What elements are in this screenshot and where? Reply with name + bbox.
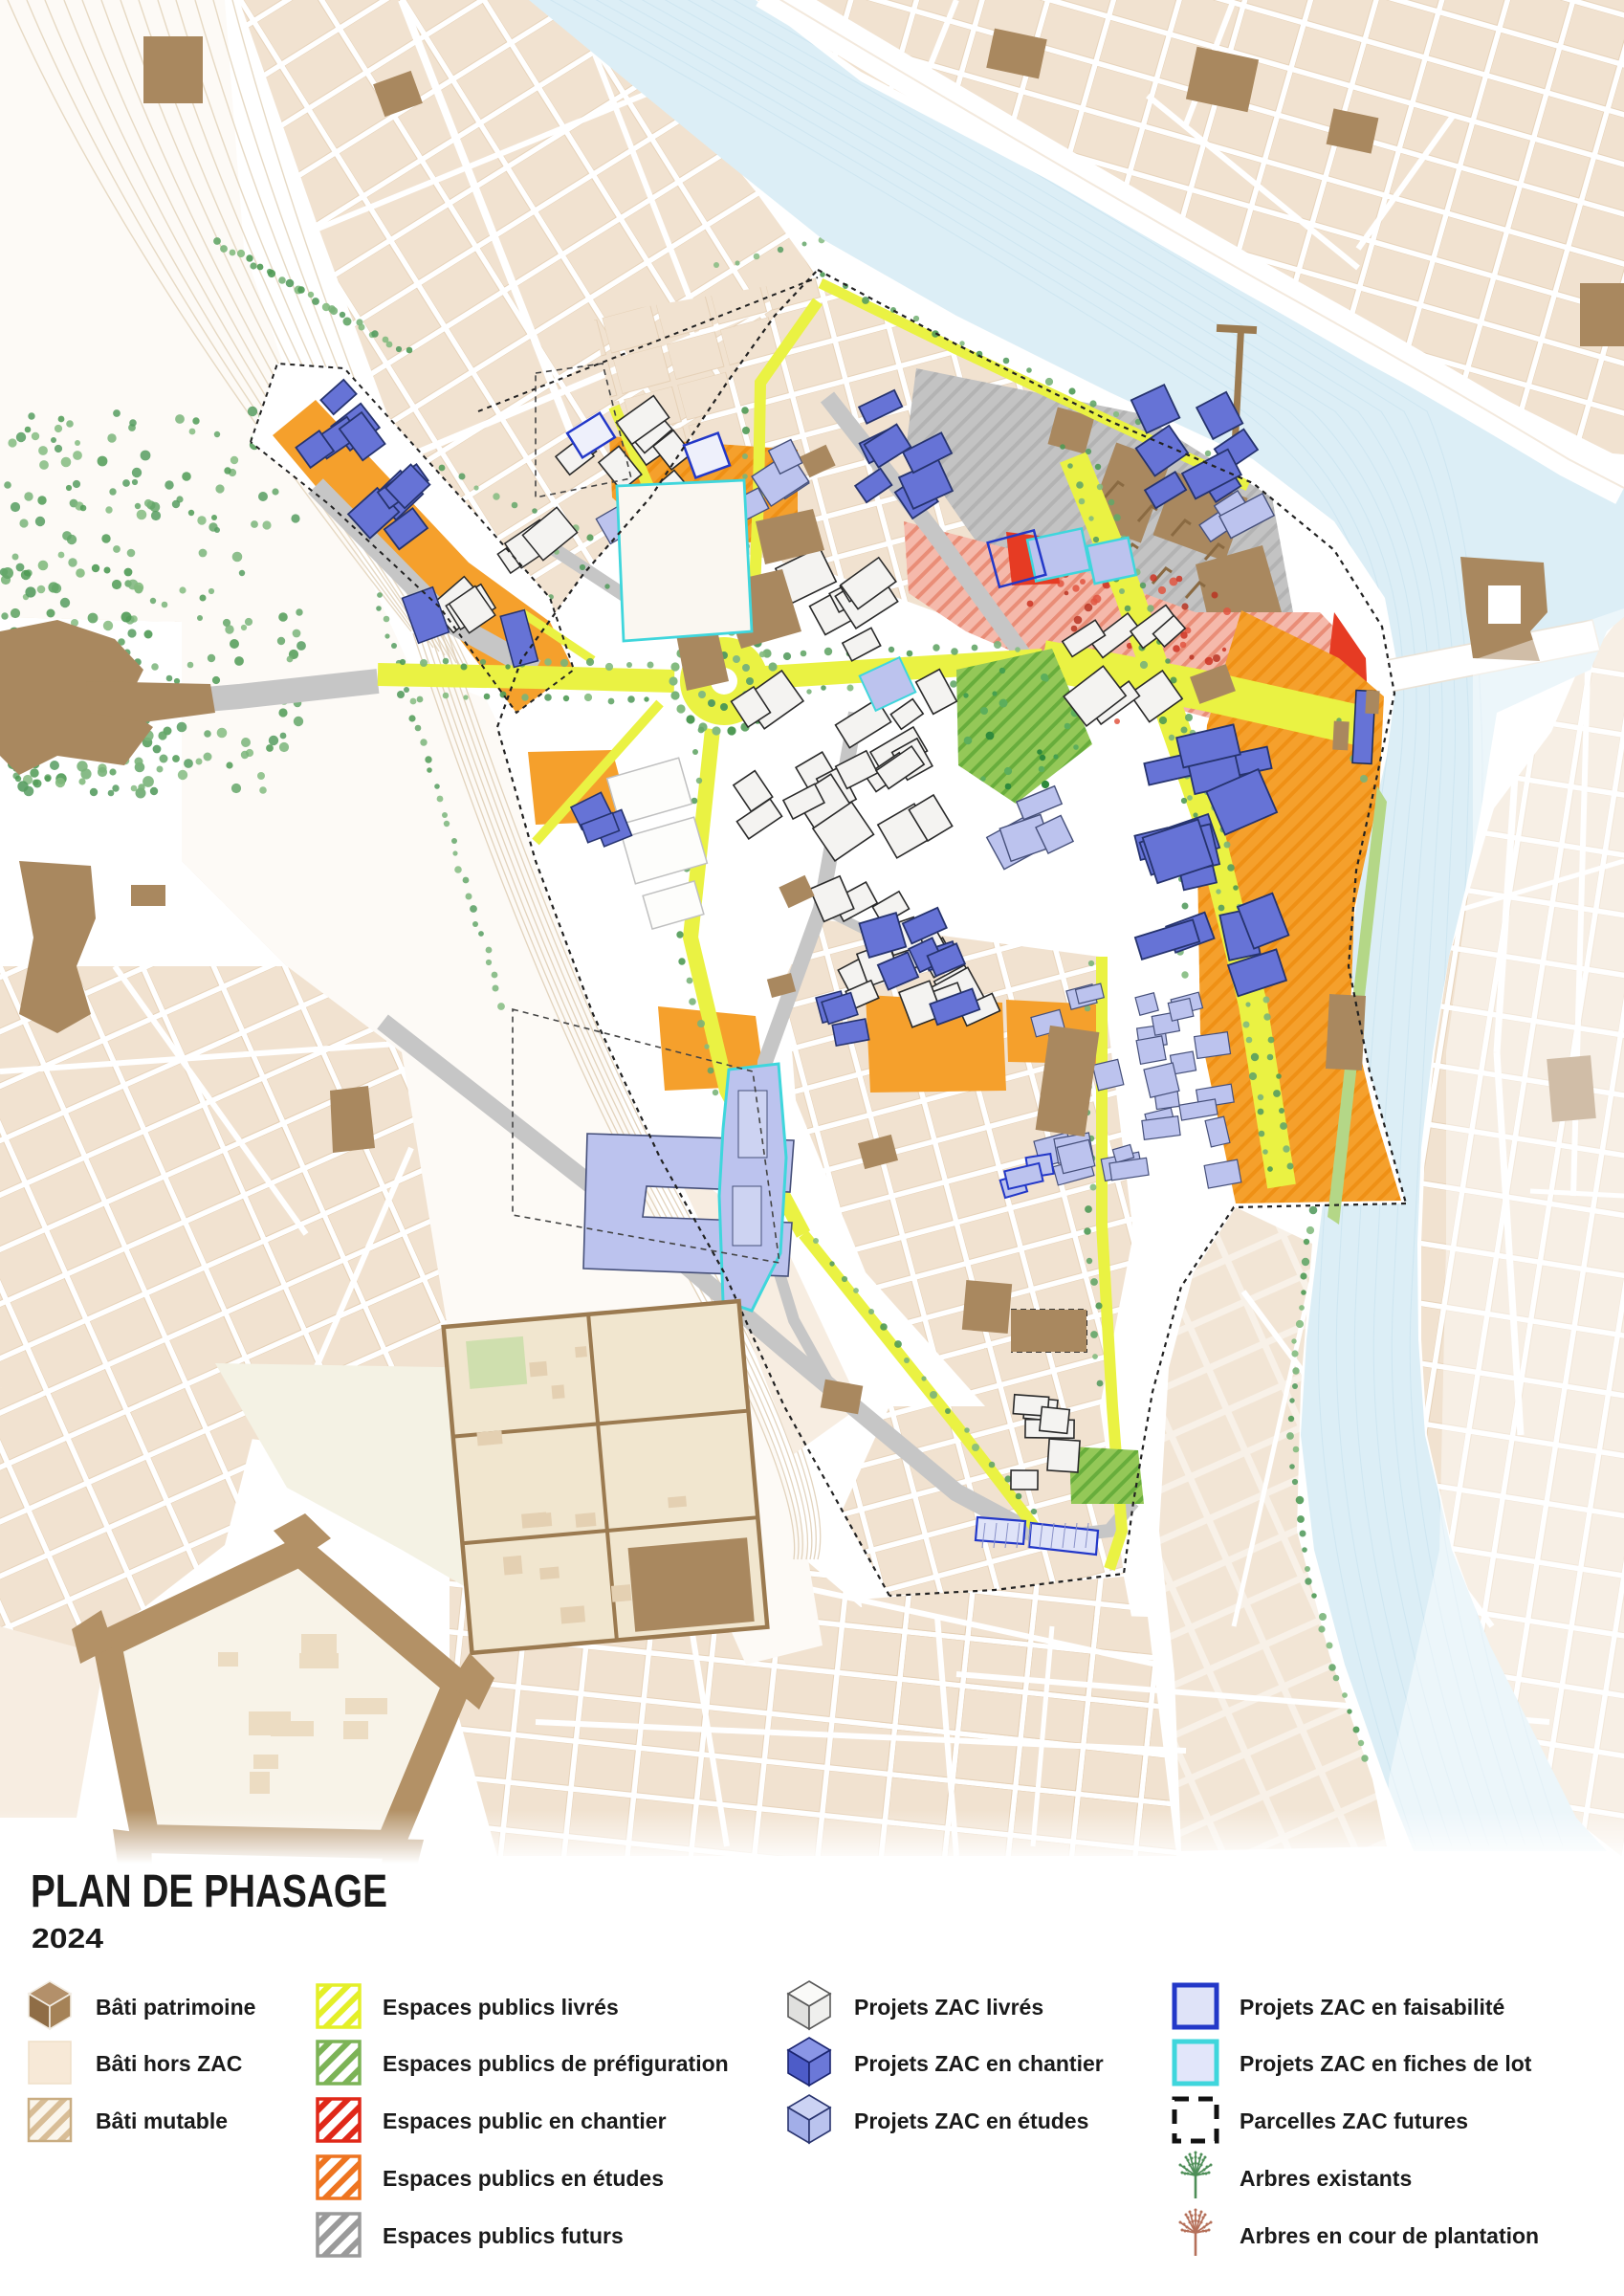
svg-text:Bâti mutable: Bâti mutable — [96, 2108, 228, 2133]
svg-text:Espaces public en chantier: Espaces public en chantier — [383, 2108, 667, 2133]
svg-text:2024: 2024 — [32, 1924, 103, 1954]
svg-text:Arbres en cour de plantation: Arbres en cour de plantation — [1240, 2223, 1539, 2248]
svg-text:Espaces publics en études: Espaces publics en études — [383, 2166, 664, 2191]
svg-text:Projets ZAC livrés: Projets ZAC livrés — [854, 1995, 1043, 2020]
svg-text:Projets ZAC en études: Projets ZAC en études — [854, 2108, 1088, 2133]
svg-text:Espaces publics livrés: Espaces publics livrés — [383, 1995, 619, 2020]
svg-text:Arbres existants: Arbres existants — [1240, 2166, 1412, 2191]
svg-text:PLAN DE PHASAGE: PLAN DE PHASAGE — [31, 1866, 387, 1917]
svg-text:Parcelles ZAC futures: Parcelles ZAC futures — [1240, 2108, 1468, 2133]
svg-text:Bâti patrimoine: Bâti patrimoine — [96, 1995, 255, 2020]
svg-text:Projets ZAC en chantier: Projets ZAC en chantier — [854, 2051, 1104, 2076]
svg-text:Projets ZAC en fiches de lot: Projets ZAC en fiches de lot — [1240, 2051, 1532, 2076]
svg-text:Espaces publics de préfigurati: Espaces publics de préfiguration — [383, 2051, 729, 2076]
svg-text:Projets ZAC en faisabilité: Projets ZAC en faisabilité — [1240, 1995, 1504, 2020]
svg-text:Bâti hors ZAC: Bâti hors ZAC — [96, 2051, 242, 2076]
svg-text:Espaces publics futurs: Espaces publics futurs — [383, 2223, 624, 2248]
